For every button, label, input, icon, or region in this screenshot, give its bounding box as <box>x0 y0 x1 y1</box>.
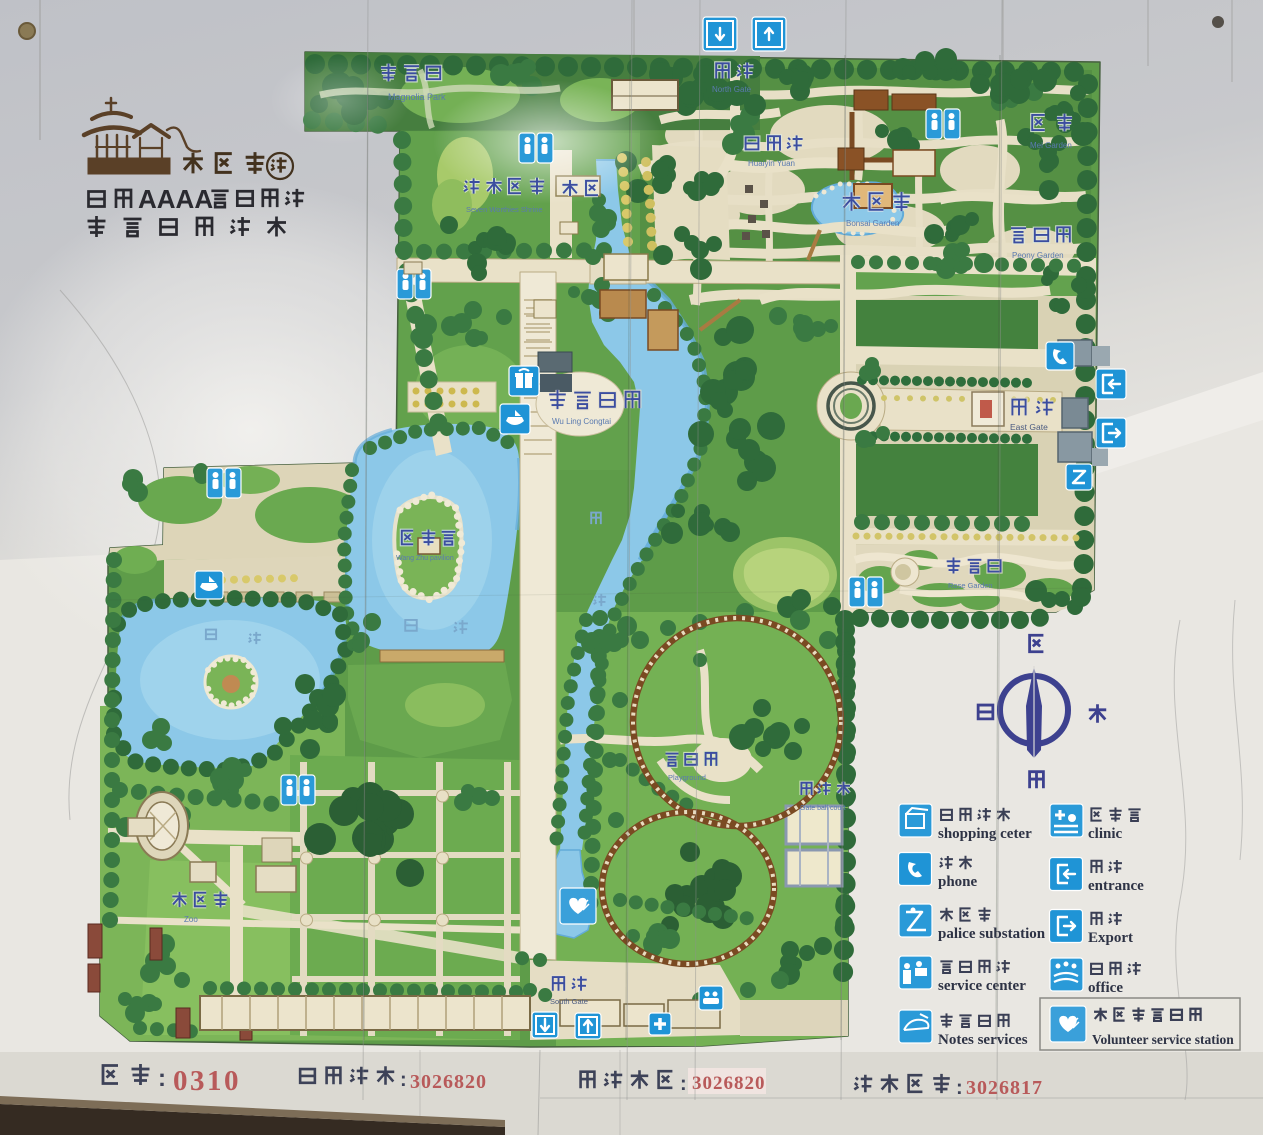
svg-text:shopping ceter: shopping ceter <box>938 826 1032 842</box>
svg-text:East Gate: East Gate <box>1010 422 1048 432</box>
svg-text:entrance: entrance <box>1088 878 1144 894</box>
svg-text:palice substation: palice substation <box>938 926 1046 942</box>
svg-text:phone: phone <box>938 874 978 890</box>
svg-text:Bonsai Garden: Bonsai Garden <box>846 219 899 228</box>
svg-text:clinic: clinic <box>1088 826 1123 842</box>
svg-text:Volunteer service station: Volunteer service station <box>1092 1032 1234 1047</box>
svg-text:Wang Zhu pavilion: Wang Zhu pavilion <box>396 555 454 562</box>
svg-text:Export: Export <box>1088 930 1133 946</box>
svg-text:3026820: 3026820 <box>692 1073 766 1094</box>
svg-text:Notes services: Notes services <box>938 1032 1028 1048</box>
svg-text:Wu Ling Congtai: Wu Ling Congtai <box>552 417 611 426</box>
svg-text::: : <box>158 1065 166 1092</box>
svg-text:Magnolia Park: Magnolia Park <box>388 92 446 102</box>
svg-text:Seven Worthies Shrine: Seven Worthies Shrine <box>466 205 543 214</box>
svg-text::: : <box>400 1069 407 1091</box>
svg-text:Mei Garden: Mei Garden <box>1030 141 1072 150</box>
svg-text:Playground: Playground <box>668 773 706 782</box>
svg-text:3026820: 3026820 <box>410 1071 487 1093</box>
svg-text:0310: 0310 <box>173 1065 241 1097</box>
svg-text:3026817: 3026817 <box>966 1077 1043 1099</box>
svg-text:Gate ball court: Gate ball court <box>800 805 846 812</box>
svg-text:Zoo: Zoo <box>184 915 198 924</box>
svg-text:Huaiyin Yuan: Huaiyin Yuan <box>748 159 795 168</box>
svg-text:North Gate: North Gate <box>712 85 752 94</box>
svg-text:South Gate: South Gate <box>550 997 588 1006</box>
svg-text:service center: service center <box>938 978 1026 994</box>
svg-text:office: office <box>1088 980 1123 996</box>
svg-text:Peony Garden: Peony Garden <box>1012 251 1064 260</box>
svg-text:AAAA: AAAA <box>138 184 213 214</box>
svg-text::: : <box>680 1073 687 1095</box>
svg-text:Rose Garden: Rose Garden <box>948 581 993 590</box>
svg-text::: : <box>956 1077 963 1099</box>
